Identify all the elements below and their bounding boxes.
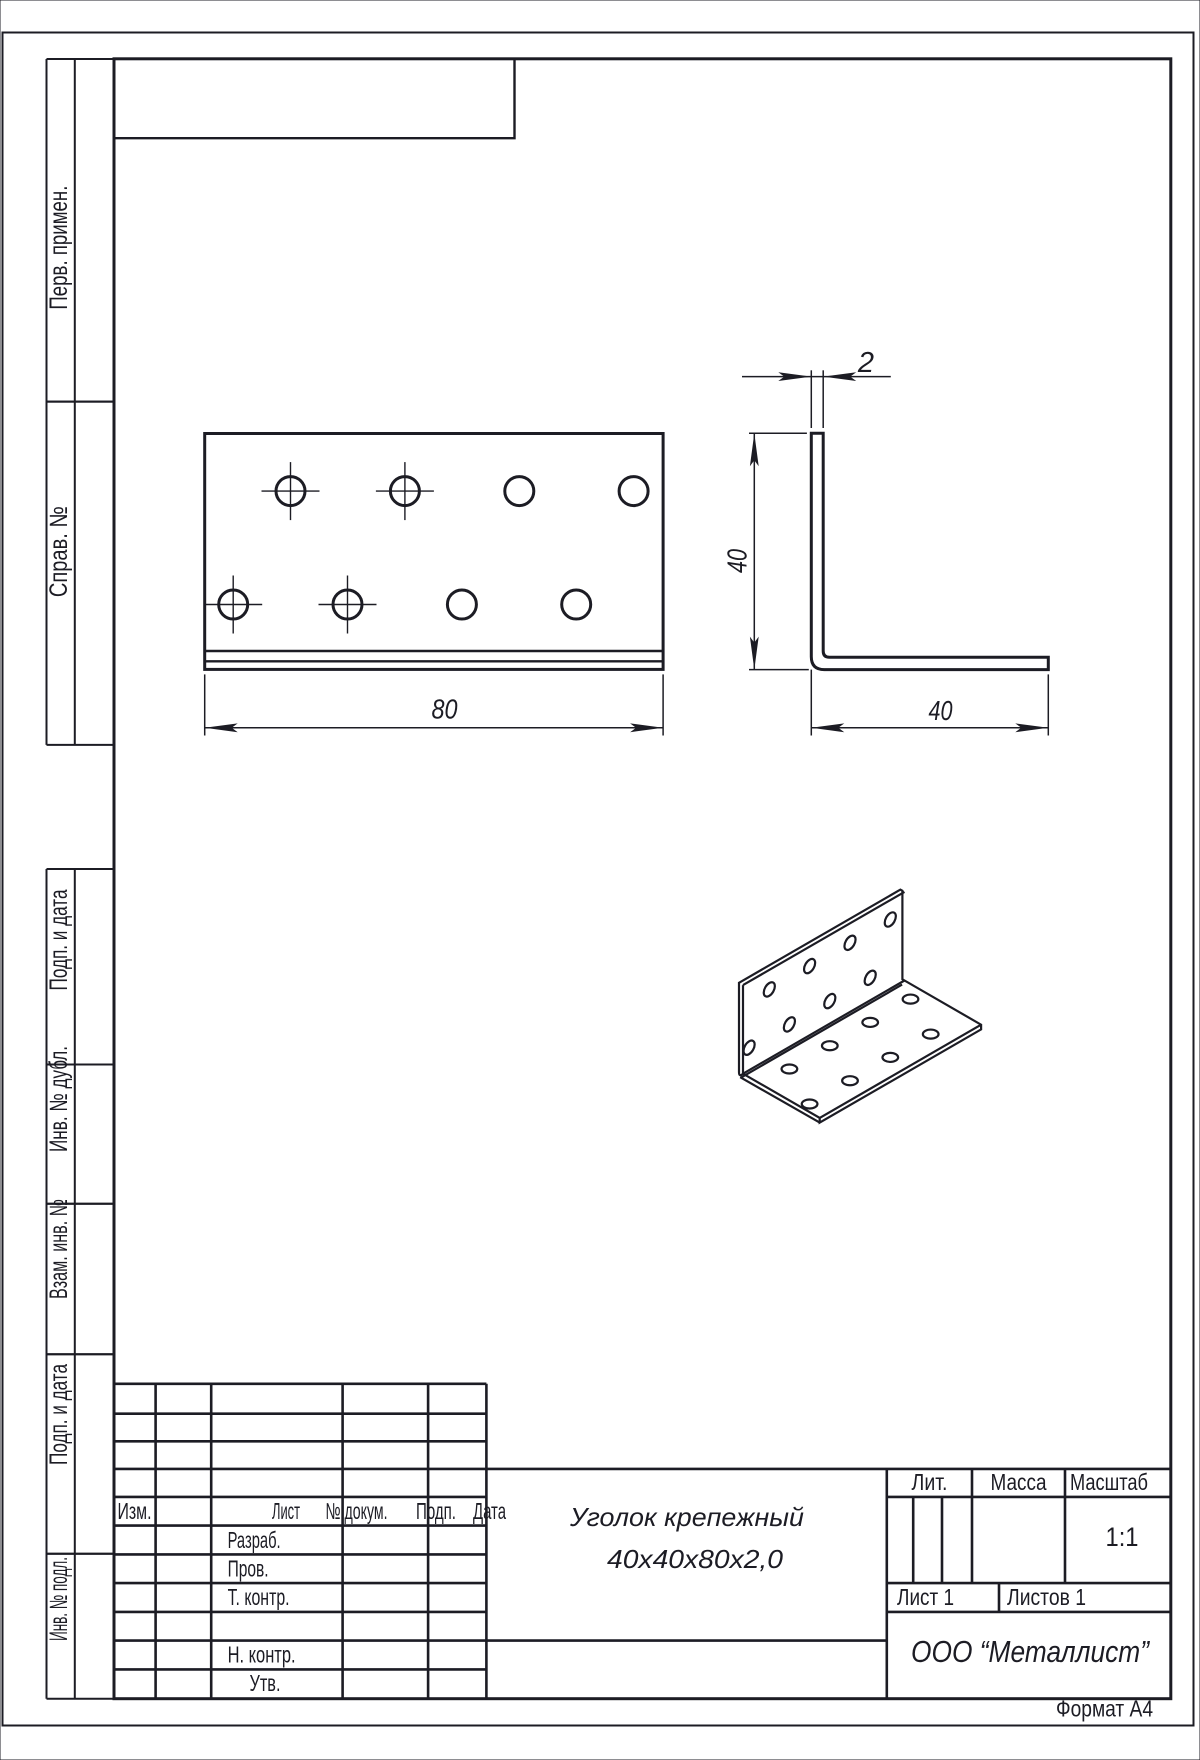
svg-text:Н. контр.: Н. контр. (228, 1642, 296, 1668)
svg-text:Листов 1: Листов 1 (1007, 1584, 1086, 1610)
svg-text:Лист: Лист (272, 1498, 300, 1524)
svg-text:Изм.: Изм. (118, 1498, 152, 1524)
svg-text:Утв.: Утв. (250, 1670, 281, 1696)
svg-text:1:1: 1:1 (1106, 1522, 1139, 1552)
svg-text:80: 80 (432, 694, 458, 725)
svg-text:40х40х80х2,0: 40х40х80х2,0 (607, 1544, 784, 1574)
svg-text:Разраб.: Разраб. (228, 1527, 281, 1553)
svg-text:Подп. и дата: Подп. и дата (45, 889, 73, 990)
svg-text:Лист 1: Лист 1 (897, 1584, 954, 1610)
svg-text:№ докум.: № докум. (326, 1498, 388, 1524)
svg-text:Пров.: Пров. (228, 1555, 269, 1581)
svg-text:ООО “Металлист”: ООО “Металлист” (911, 1634, 1150, 1669)
svg-text:Масштаб: Масштаб (1070, 1469, 1148, 1495)
svg-text:Подп. и дата: Подп. и дата (45, 1364, 73, 1465)
svg-text:Масса: Масса (991, 1469, 1047, 1495)
svg-text:2: 2 (857, 347, 874, 379)
svg-text:Инв. № дубл.: Инв. № дубл. (45, 1046, 73, 1152)
svg-text:Взам. инв. №: Взам. инв. № (45, 1199, 73, 1299)
svg-text:Дата: Дата (473, 1498, 506, 1524)
svg-text:Формат А4: Формат А4 (1056, 1696, 1153, 1722)
svg-text:Лит.: Лит. (912, 1469, 948, 1495)
svg-text:40: 40 (722, 549, 753, 573)
svg-text:Т. контр.: Т. контр. (228, 1584, 290, 1610)
svg-text:Инв. № подл.: Инв. № подл. (45, 1557, 73, 1641)
svg-text:Уголок крепежный: Уголок крепежный (569, 1502, 804, 1532)
svg-text:Справ. №: Справ. № (45, 506, 73, 597)
svg-text:Перв. примен.: Перв. примен. (45, 186, 73, 310)
svg-text:Подп.: Подп. (416, 1498, 456, 1524)
svg-text:40: 40 (929, 695, 953, 726)
